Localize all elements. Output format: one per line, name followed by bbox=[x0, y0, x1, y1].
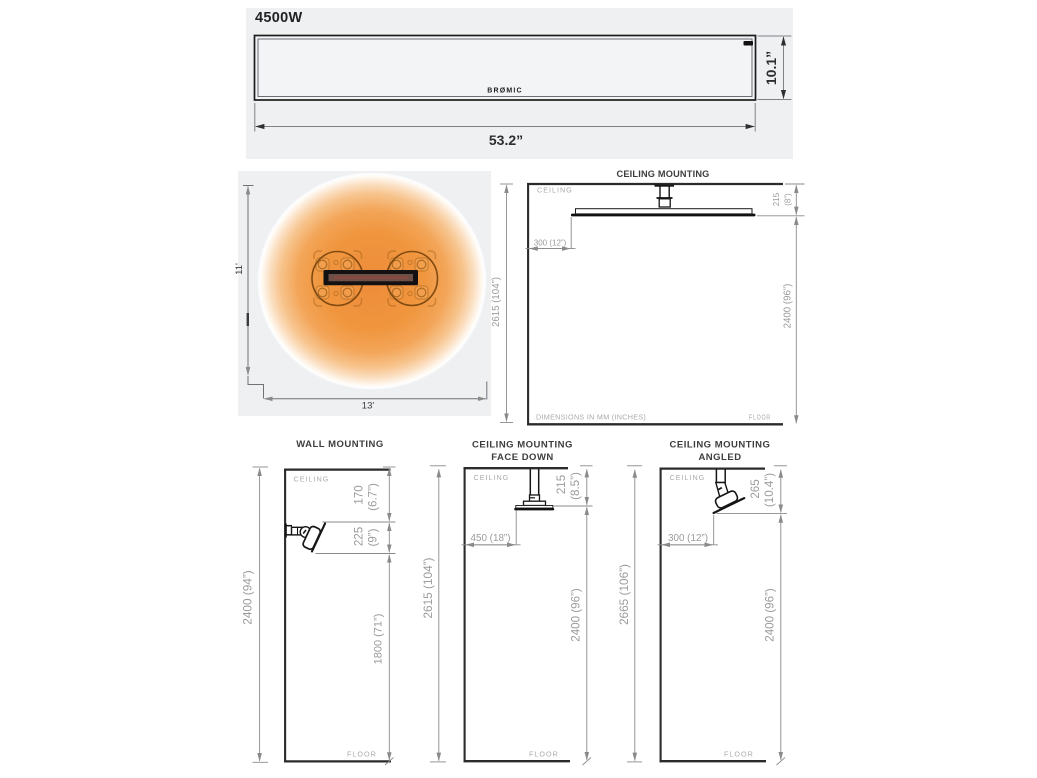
svg-text:2615 (104”): 2615 (104”) bbox=[491, 277, 502, 327]
svg-text:CEILING: CEILING bbox=[670, 473, 706, 482]
svg-text:ANGLED: ANGLED bbox=[698, 452, 741, 463]
svg-text:FACE DOWN: FACE DOWN bbox=[491, 452, 554, 463]
svg-text:215: 215 bbox=[555, 475, 568, 494]
svg-text:2400 (94”): 2400 (94”) bbox=[241, 570, 255, 624]
svg-text:215: 215 bbox=[772, 192, 781, 206]
svg-text:(10.4”): (10.4”) bbox=[763, 473, 776, 507]
svg-text:13': 13' bbox=[362, 401, 375, 412]
svg-text:CEILING: CEILING bbox=[294, 475, 330, 484]
svg-text:DIMENSIONS IN MM (INCHES): DIMENSIONS IN MM (INCHES) bbox=[536, 413, 646, 422]
svg-text:170: 170 bbox=[353, 485, 366, 504]
svg-text:2400 (96”): 2400 (96”) bbox=[764, 588, 777, 642]
svg-text:225: 225 bbox=[353, 527, 366, 546]
svg-text:265: 265 bbox=[749, 479, 762, 498]
svg-text:(8.5”): (8.5”) bbox=[569, 472, 582, 500]
svg-text:2400 (96”): 2400 (96”) bbox=[783, 284, 794, 329]
svg-text:CEILING MOUNTING: CEILING MOUNTING bbox=[616, 169, 709, 179]
svg-text:10.1”: 10.1” bbox=[763, 51, 779, 85]
svg-text:2665 (106”): 2665 (106”) bbox=[617, 564, 631, 625]
svg-text:(6.7”): (6.7”) bbox=[367, 483, 380, 511]
svg-text:300 (12”): 300 (12”) bbox=[534, 239, 567, 248]
svg-text:FLOOR: FLOOR bbox=[529, 750, 559, 759]
svg-text:CEILING MOUNTING: CEILING MOUNTING bbox=[472, 440, 573, 451]
svg-text:CEILING: CEILING bbox=[537, 186, 573, 195]
svg-text:450 (18”): 450 (18”) bbox=[471, 533, 511, 544]
svg-text:BRØMIC: BRØMIC bbox=[487, 88, 523, 95]
svg-text:FLOOR: FLOOR bbox=[347, 750, 377, 759]
svg-text:2400 (96”): 2400 (96”) bbox=[570, 588, 583, 642]
svg-text:CEILING MOUNTING: CEILING MOUNTING bbox=[670, 440, 771, 451]
svg-text:11': 11' bbox=[234, 263, 245, 275]
svg-text:WALL MOUNTING: WALL MOUNTING bbox=[296, 439, 384, 450]
svg-text:(8”): (8”) bbox=[784, 193, 793, 206]
svg-text:1800 (71”): 1800 (71”) bbox=[373, 614, 385, 665]
svg-text:FLOOR: FLOOR bbox=[724, 750, 754, 759]
svg-text:2615 (104”): 2615 (104”) bbox=[421, 557, 435, 618]
svg-text:CEILING: CEILING bbox=[474, 473, 510, 482]
svg-text:300 (12”): 300 (12”) bbox=[668, 533, 708, 544]
svg-text:4500W: 4500W bbox=[255, 10, 302, 26]
svg-text:(9”): (9”) bbox=[367, 528, 380, 546]
svg-text:53.2”: 53.2” bbox=[489, 132, 523, 148]
svg-text:FLOOR: FLOOR bbox=[749, 413, 771, 422]
